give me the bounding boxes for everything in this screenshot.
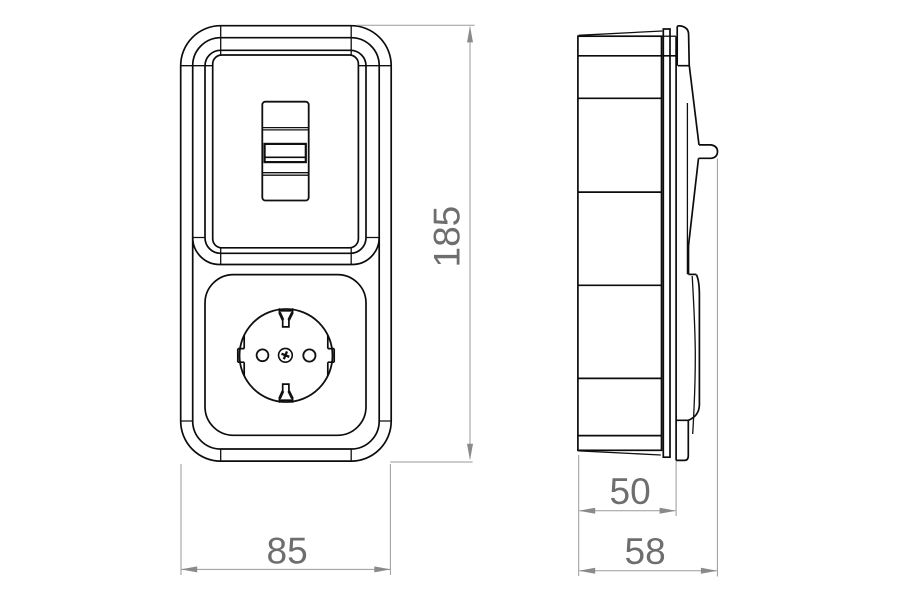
svg-text:50: 50 — [610, 471, 651, 512]
svg-text:85: 85 — [267, 531, 308, 572]
svg-text:58: 58 — [625, 531, 666, 572]
svg-text:185: 185 — [427, 206, 468, 268]
